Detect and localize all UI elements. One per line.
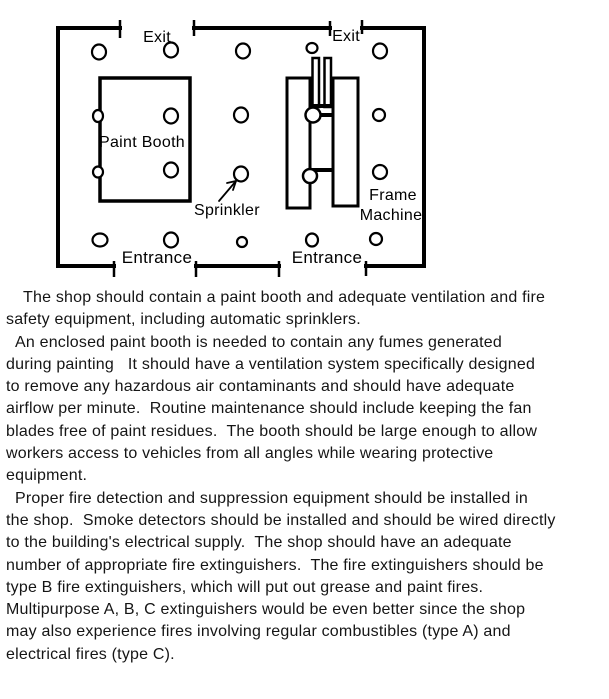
sprinkler-circle [164,109,178,124]
sprinkler-circle [164,233,178,248]
frame-machine-tower-bar [313,58,320,107]
text-line: the shop. Smoke detectors should be inst… [6,510,606,532]
text-line: airflow per minute. Routine maintenance … [6,398,606,420]
exit-label: Exit [143,29,171,46]
sprinkler-circle [373,109,385,121]
exit-label: Exit [332,28,360,45]
sprinkler-circle [307,43,318,53]
sprinkler-circle [93,234,108,247]
sprinkler-circle [234,108,248,123]
sprinkler-circle [234,167,248,182]
wall-top-right-and-right [362,28,424,266]
frame-machine-label-line2: Machine [360,207,423,224]
entrance-label: Entrance [292,248,362,267]
text-line: number of appropriate fire extinguishers… [6,555,606,577]
text-line: type B fire extinguishers, which will pu… [6,577,606,599]
frame-machine-pivot [306,108,321,123]
frame-machine-tower-bar [325,58,332,107]
sprinkler-circle [237,237,247,247]
sprinkler-circle [370,233,382,245]
text-line: electrical fires (type C). [6,644,606,666]
floor-plan-diagram: Exit Exit Entrance Entrance Paint Booth … [0,0,609,282]
text-line: to the building's electrical supply. The… [6,532,606,554]
text-line: equipment. [6,465,606,487]
text-line: Multipurpose A, B, C extinguishers would… [6,599,606,621]
text-line: blades free of paint residues. The booth… [6,421,606,443]
text-line: The shop should contain a paint booth an… [6,287,606,309]
sprinkler-circle [92,45,106,60]
sprinkler-circle [373,165,387,179]
sprinkler-arrow [219,181,236,201]
sprinkler-circle [373,44,387,59]
entrance-label: Entrance [122,248,192,267]
body-text: The shop should contain a paint booth an… [6,287,606,666]
sprinkler-circle [93,110,103,122]
text-line: Proper fire detection and suppression eq… [6,488,606,510]
shop-plan-page: Exit Exit Entrance Entrance Paint Booth … [0,0,609,699]
frame-machine-label-line1: Frame [369,187,417,204]
text-line: during painting It should have a ventila… [6,354,606,376]
text-line: may also experience fires involving regu… [6,621,606,643]
sprinkler-circle [306,234,318,247]
text-line: to remove any hazardous air contaminants… [6,376,606,398]
frame-machine-pivot [303,169,317,183]
text-line: safety equipment, including automatic sp… [6,309,606,331]
frame-machine-left-rail [287,78,310,208]
sprinkler-circle [164,163,178,178]
paint-booth-label: Paint Booth [99,134,185,151]
sprinkler-arrow-shaft [219,181,236,201]
frame-machine [287,58,358,208]
sprinkler-label: Sprinkler [194,202,260,219]
text-line: workers access to vehicles from all angl… [6,443,606,465]
sprinkler-circle [236,44,250,59]
text-line: An enclosed paint booth is needed to con… [6,332,606,354]
frame-machine-right-rail [333,78,358,206]
sprinkler-circle [93,167,103,178]
